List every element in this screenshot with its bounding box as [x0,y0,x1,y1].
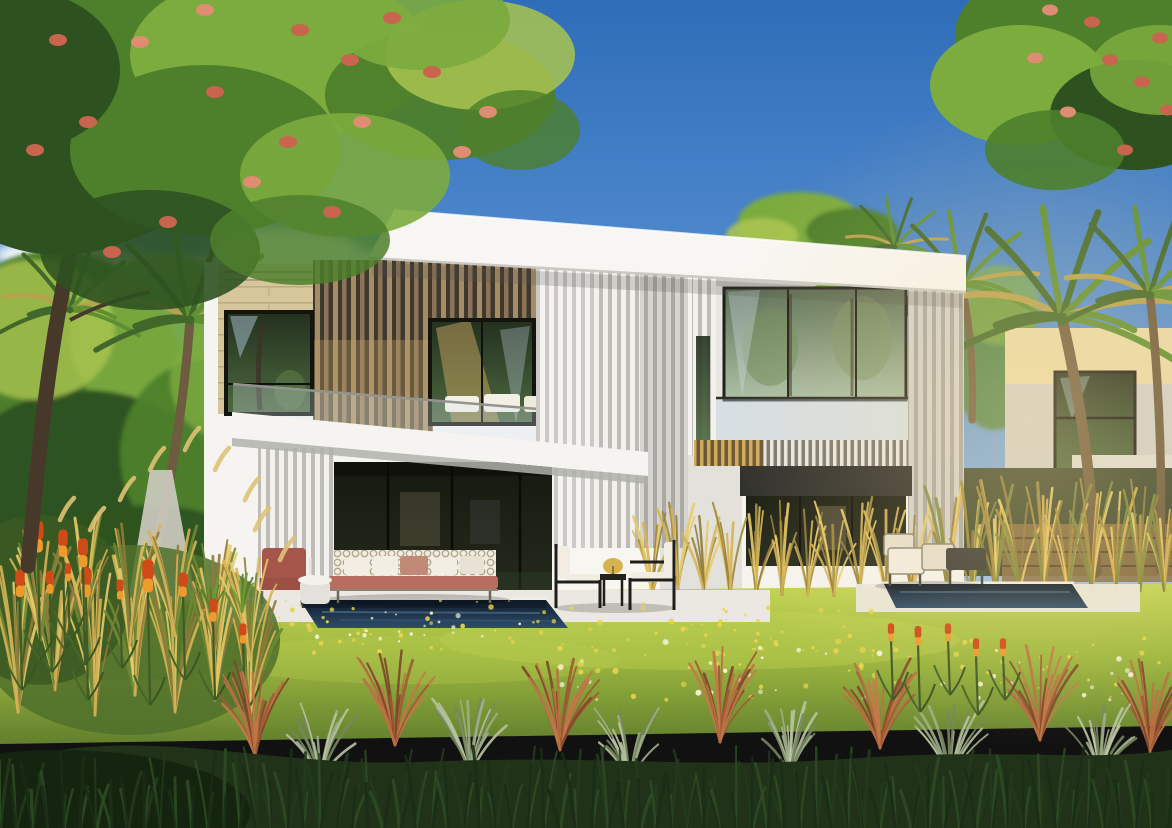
scene-svg [0,0,1172,828]
side-table [298,575,332,604]
sofa-seat-cushion [328,576,498,589]
architectural-rendering [0,0,1172,828]
